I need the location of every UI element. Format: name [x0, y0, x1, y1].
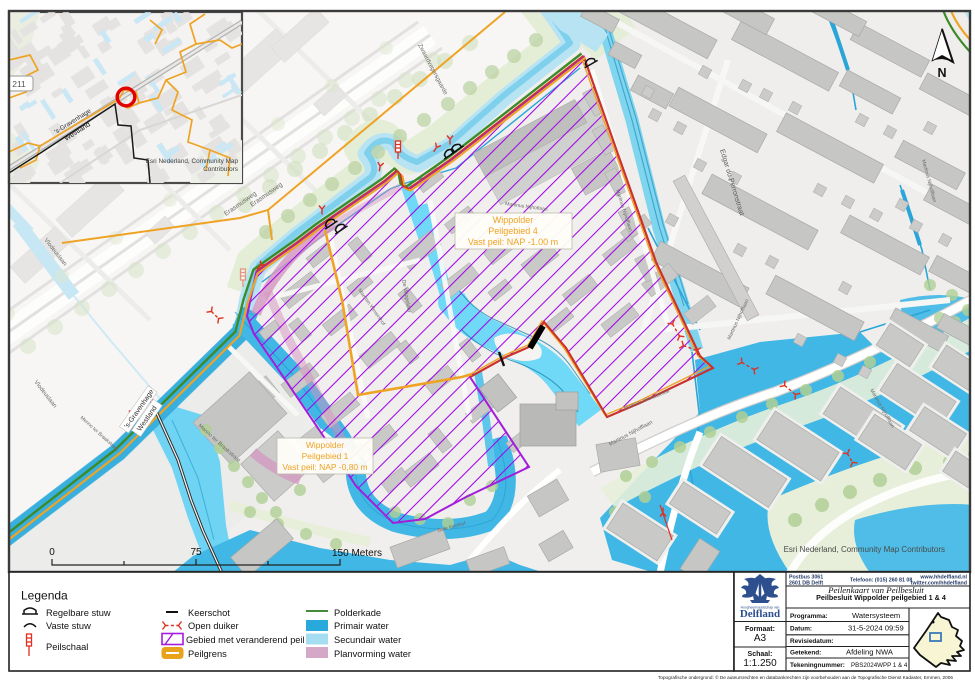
svg-text:2601 DB Delft: 2601 DB Delft [789, 581, 823, 587]
svg-text:Getekend:: Getekend: [790, 650, 821, 657]
svg-text:Polderkade: Polderkade [334, 608, 381, 618]
svg-text:Regelbare stuw: Regelbare stuw [46, 608, 111, 618]
svg-text:150 Meters: 150 Meters [332, 548, 382, 559]
svg-text:Peilgebied 1: Peilgebied 1 [302, 451, 349, 461]
svg-text:211: 211 [12, 79, 26, 89]
svg-text:1:1.250: 1:1.250 [743, 658, 777, 669]
svg-text:0: 0 [49, 547, 55, 558]
svg-text:A3: A3 [754, 633, 767, 644]
svg-text:Programma:: Programma: [790, 613, 828, 620]
svg-text:Gebied met veranderend peil: Gebied met veranderend peil [186, 635, 305, 645]
svg-text:Planvorming water: Planvorming water [334, 649, 411, 659]
svg-text:Formaat:: Formaat: [745, 626, 775, 633]
svg-text:75: 75 [190, 547, 202, 558]
svg-text:Peilgebied 4: Peilgebied 4 [488, 226, 538, 236]
svg-text:Watersysteem: Watersysteem [852, 611, 900, 620]
svg-text:Keerschot: Keerschot [188, 608, 230, 618]
svg-text:Primair water: Primair water [334, 621, 389, 631]
svg-text:Vast peil: NAP -1.00 m: Vast peil: NAP -1.00 m [468, 237, 558, 247]
svg-text:Peilgrens: Peilgrens [188, 649, 227, 659]
svg-text:PBS2024WPP 1 & 4: PBS2024WPP 1 & 4 [851, 662, 908, 669]
svg-text:Delfland: Delfland [740, 608, 780, 620]
svg-text:Tekeningnummer:: Tekeningnummer: [790, 662, 845, 669]
svg-text:Esri Nederland, Community Map: Esri Nederland, Community Map [146, 158, 239, 165]
svg-text:Vast peil: NAP -0,80 m: Vast peil: NAP -0,80 m [282, 462, 367, 472]
svg-text:Peilbesluit Wippolder peilgebi: Peilbesluit Wippolder peilgebied 1 & 4 [816, 593, 946, 602]
svg-text:Contributors: Contributors [203, 166, 238, 173]
svg-text:Afdeling NWA: Afdeling NWA [846, 648, 894, 657]
svg-text:Revisiedatum:: Revisiedatum: [790, 638, 834, 645]
svg-text:Datum:: Datum: [790, 626, 812, 633]
svg-text:Vaste stuw: Vaste stuw [46, 621, 91, 631]
svg-text:Esri Nederland, Community Map: Esri Nederland, Community Map Contributo… [784, 545, 945, 554]
svg-text:Legenda: Legenda [21, 589, 68, 603]
svg-text:Topografische ondergrond: © D: Topografische ondergrond: © De auteursre… [658, 674, 953, 680]
svg-text:Wippolder: Wippolder [493, 215, 534, 225]
svg-text:Wippolder: Wippolder [306, 440, 344, 450]
svg-text:N: N [937, 66, 946, 80]
svg-text:Schaal:: Schaal: [748, 651, 773, 658]
svg-text:31-5-2024 09:59: 31-5-2024 09:59 [848, 624, 904, 633]
svg-text:Peilschaal: Peilschaal [46, 642, 88, 652]
svg-text:Secundair water: Secundair water [334, 635, 401, 645]
svg-text:Telefoon: (015) 260 81 08: Telefoon: (015) 260 81 08 [850, 578, 912, 584]
svg-text:Open duiker: Open duiker [188, 621, 239, 631]
